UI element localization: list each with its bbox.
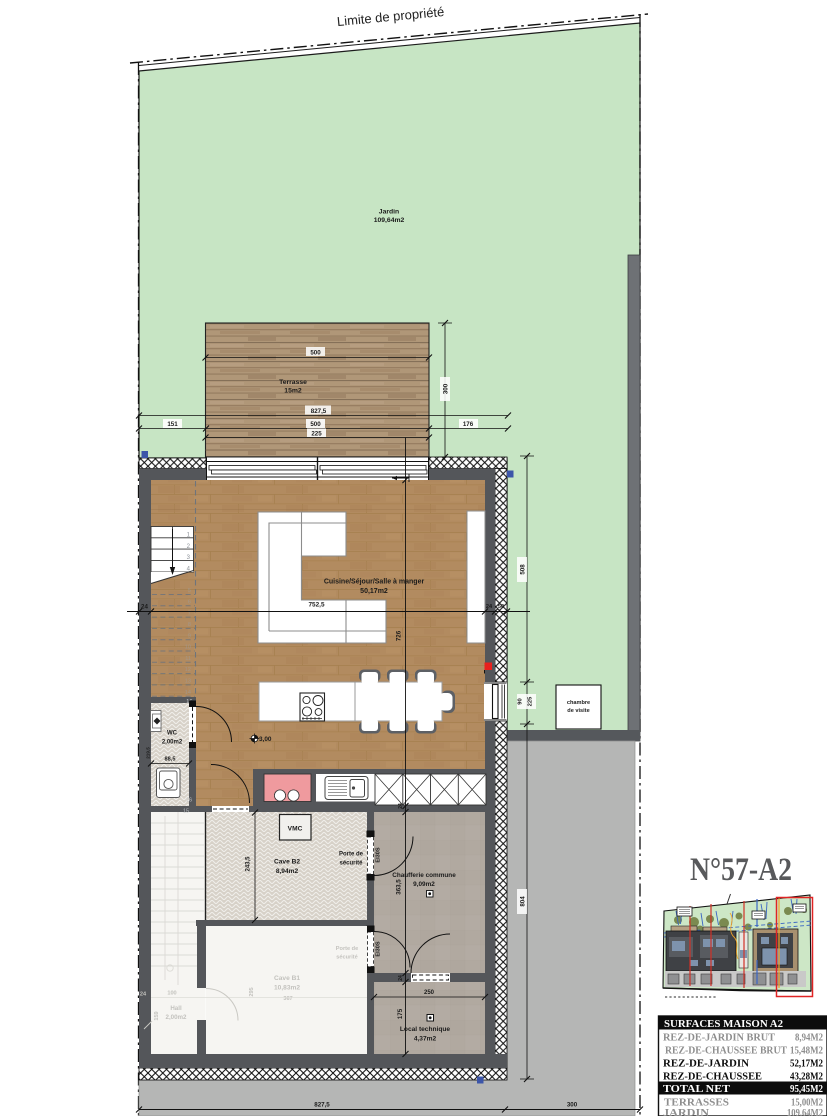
svg-text:52,17M2: 52,17M2	[790, 1059, 823, 1070]
svg-text:109,64m2: 109,64m2	[374, 217, 405, 224]
svg-text:24: 24	[140, 992, 147, 998]
svg-text:6: 6	[188, 599, 191, 605]
svg-text:Porte de: Porte de	[336, 946, 358, 952]
svg-text:Cave B2: Cave B2	[274, 859, 300, 866]
svg-text:chambre: chambre	[567, 700, 590, 706]
svg-text:95,45M2: 95,45M2	[790, 1084, 823, 1095]
svg-text:JARDIN: JARDIN	[663, 1108, 709, 1116]
svg-text:Cave B1: Cave B1	[274, 975, 300, 982]
svg-text:90: 90	[518, 698, 524, 704]
svg-text:REZ-DE-CHAUSSEE: REZ-DE-CHAUSSEE	[663, 1072, 762, 1083]
svg-text:50: 50	[498, 604, 504, 610]
svg-text:Chaufferie commune: Chaufferie commune	[392, 872, 456, 879]
svg-text:300: 300	[443, 383, 450, 394]
svg-text:804: 804	[520, 896, 527, 907]
svg-text:5: 5	[188, 588, 191, 594]
svg-text:300: 300	[567, 1102, 578, 1109]
svg-text:10: 10	[185, 645, 191, 651]
svg-text:24: 24	[398, 975, 404, 981]
svg-text:WC: WC	[167, 731, 178, 737]
svg-text:159: 159	[154, 1011, 160, 1020]
svg-text:225: 225	[311, 431, 322, 438]
svg-text:TOTAL NET: TOTAL NET	[663, 1084, 730, 1095]
svg-text:225: 225	[528, 696, 534, 706]
svg-text:10,83m2: 10,83m2	[274, 985, 300, 992]
svg-text:VMC: VMC	[288, 826, 303, 833]
svg-text:Cuisine/Séjour/Salle à manger: Cuisine/Séjour/Salle à manger	[324, 579, 425, 586]
svg-text:24: 24	[141, 604, 148, 611]
svg-text:243,5: 243,5	[246, 856, 252, 872]
svg-text:15: 15	[183, 809, 189, 815]
svg-text:EI30S: EI30S	[376, 941, 382, 957]
svg-text:367: 367	[283, 996, 292, 1002]
svg-text:N°57-A2: N°57-A2	[690, 852, 792, 888]
svg-text:176: 176	[463, 421, 474, 428]
svg-text:24: 24	[486, 604, 493, 610]
svg-text:151: 151	[167, 421, 178, 428]
svg-text:Porte de: Porte de	[339, 852, 364, 858]
svg-text:508: 508	[520, 564, 527, 575]
svg-text:250: 250	[424, 990, 435, 996]
svg-text:SURFACES MAISON A2: SURFACES MAISON A2	[664, 1018, 783, 1030]
svg-text:15m2: 15m2	[284, 388, 302, 395]
svg-text:14: 14	[185, 690, 191, 696]
svg-text:REZ-DE-JARDIN: REZ-DE-JARDIN	[663, 1059, 749, 1070]
svg-text:TERRASSES: TERRASSES	[664, 1098, 729, 1109]
svg-text:13: 13	[185, 679, 191, 685]
svg-text:363,5: 363,5	[396, 879, 403, 895]
svg-text:15,48M2: 15,48M2	[790, 1046, 823, 1057]
svg-text:8,94m2: 8,94m2	[276, 868, 299, 875]
svg-text:Local technique: Local technique	[400, 1026, 451, 1033]
svg-text:11: 11	[185, 656, 191, 662]
svg-text:219,5: 219,5	[146, 747, 151, 759]
svg-text:4,37m2: 4,37m2	[414, 1036, 437, 1043]
svg-text:Jardin: Jardin	[379, 209, 399, 216]
svg-text:100: 100	[167, 991, 176, 997]
svg-text:24: 24	[398, 803, 404, 809]
svg-text:726: 726	[396, 630, 403, 641]
svg-text:3,00: 3,00	[259, 736, 272, 743]
svg-text:9: 9	[188, 633, 191, 639]
svg-text:Terrasse: Terrasse	[279, 379, 307, 386]
svg-text:8,94M2: 8,94M2	[795, 1033, 823, 1044]
svg-text:9,09m2: 9,09m2	[413, 881, 435, 888]
svg-text:12: 12	[185, 667, 191, 673]
svg-text:827,5: 827,5	[311, 408, 327, 415]
svg-text:EI30S: EI30S	[376, 847, 382, 863]
svg-text:2,00m2: 2,00m2	[166, 1014, 188, 1021]
svg-text:50,17m2: 50,17m2	[360, 588, 388, 595]
svg-text:16: 16	[186, 798, 192, 804]
svg-text:827,5: 827,5	[314, 1102, 330, 1109]
svg-text:REZ-DE-JARDIN BRUT: REZ-DE-JARDIN BRUT	[663, 1033, 775, 1044]
svg-text:109,64M2: 109,64M2	[787, 1108, 823, 1116]
svg-text:88,5: 88,5	[165, 757, 176, 763]
svg-text:175: 175	[397, 1008, 404, 1019]
svg-text:sécurité: sécurité	[336, 955, 357, 961]
svg-text:500: 500	[310, 421, 321, 428]
svg-text:Hall: Hall	[170, 1005, 182, 1012]
svg-text:752,5: 752,5	[309, 602, 325, 609]
svg-text:de visite: de visite	[567, 708, 589, 714]
svg-text:REZ-DE-CHAUSSEE BRUT: REZ-DE-CHAUSSEE BRUT	[665, 1046, 787, 1057]
svg-text:295: 295	[249, 987, 255, 996]
svg-text:2,00m2: 2,00m2	[162, 740, 183, 746]
svg-text:8: 8	[188, 622, 191, 628]
svg-text:43,28M2: 43,28M2	[790, 1072, 823, 1083]
svg-text:sécurité: sécurité	[339, 861, 363, 867]
svg-text:500: 500	[310, 350, 321, 357]
svg-text:15,00M2: 15,00M2	[791, 1098, 823, 1109]
